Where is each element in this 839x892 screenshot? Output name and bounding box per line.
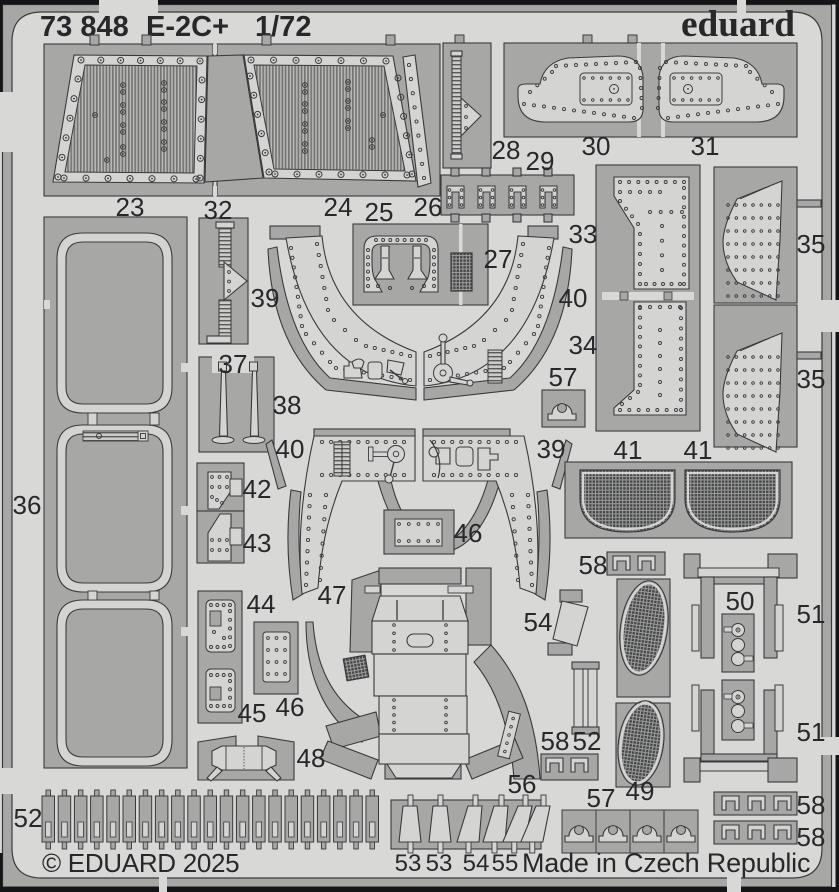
svg-text:Made in Czech Republic: Made in Czech Republic bbox=[522, 848, 810, 878]
svg-text:46: 46 bbox=[276, 692, 305, 722]
svg-text:57: 57 bbox=[587, 783, 616, 813]
svg-text:23: 23 bbox=[116, 192, 145, 222]
svg-text:26: 26 bbox=[414, 192, 443, 222]
svg-text:30: 30 bbox=[582, 131, 611, 161]
svg-text:39: 39 bbox=[537, 434, 566, 464]
svg-text:57: 57 bbox=[549, 362, 578, 392]
svg-text:24: 24 bbox=[324, 192, 353, 222]
svg-text:58: 58 bbox=[541, 726, 570, 756]
svg-text:43: 43 bbox=[243, 528, 272, 558]
svg-text:50: 50 bbox=[726, 586, 755, 616]
svg-text:53: 53 bbox=[395, 850, 422, 877]
svg-text:27: 27 bbox=[484, 244, 513, 274]
svg-text:28: 28 bbox=[492, 135, 521, 165]
svg-text:44: 44 bbox=[247, 589, 276, 619]
svg-text:37: 37 bbox=[219, 349, 248, 379]
svg-text:29: 29 bbox=[526, 146, 555, 176]
svg-text:54: 54 bbox=[463, 850, 490, 877]
svg-text:51: 51 bbox=[797, 717, 826, 747]
svg-text:58: 58 bbox=[579, 550, 608, 580]
svg-text:49: 49 bbox=[626, 776, 655, 806]
svg-text:56: 56 bbox=[508, 769, 537, 799]
svg-text:41: 41 bbox=[614, 435, 643, 465]
svg-text:33: 33 bbox=[569, 219, 598, 249]
svg-text:35: 35 bbox=[797, 364, 826, 394]
svg-text:34: 34 bbox=[569, 330, 598, 360]
svg-text:58: 58 bbox=[797, 790, 826, 820]
svg-text:52: 52 bbox=[14, 803, 43, 833]
svg-text:51: 51 bbox=[797, 599, 826, 629]
svg-text:41: 41 bbox=[684, 435, 713, 465]
svg-text:42: 42 bbox=[243, 474, 272, 504]
svg-text:39: 39 bbox=[251, 283, 280, 313]
svg-text:54: 54 bbox=[524, 607, 553, 637]
svg-text:25: 25 bbox=[365, 197, 394, 227]
svg-text:36: 36 bbox=[13, 490, 42, 520]
svg-text:40: 40 bbox=[559, 283, 588, 313]
svg-text:© EDUARD 2025: © EDUARD 2025 bbox=[42, 848, 239, 878]
svg-text:E-2C+: E-2C+ bbox=[146, 11, 229, 43]
svg-text:48: 48 bbox=[297, 743, 326, 773]
svg-text:55: 55 bbox=[492, 850, 519, 877]
svg-text:45: 45 bbox=[238, 698, 267, 728]
svg-text:47: 47 bbox=[318, 580, 347, 610]
svg-text:32: 32 bbox=[204, 195, 233, 225]
svg-text:40: 40 bbox=[276, 434, 305, 464]
svg-text:38: 38 bbox=[273, 390, 302, 420]
svg-text:eduard: eduard bbox=[681, 4, 795, 45]
svg-text:73 848: 73 848 bbox=[40, 11, 129, 43]
svg-text:52: 52 bbox=[573, 726, 602, 756]
svg-text:31: 31 bbox=[691, 131, 720, 161]
svg-text:35: 35 bbox=[797, 229, 826, 259]
svg-text:46: 46 bbox=[454, 518, 483, 548]
svg-text:53: 53 bbox=[426, 850, 453, 877]
